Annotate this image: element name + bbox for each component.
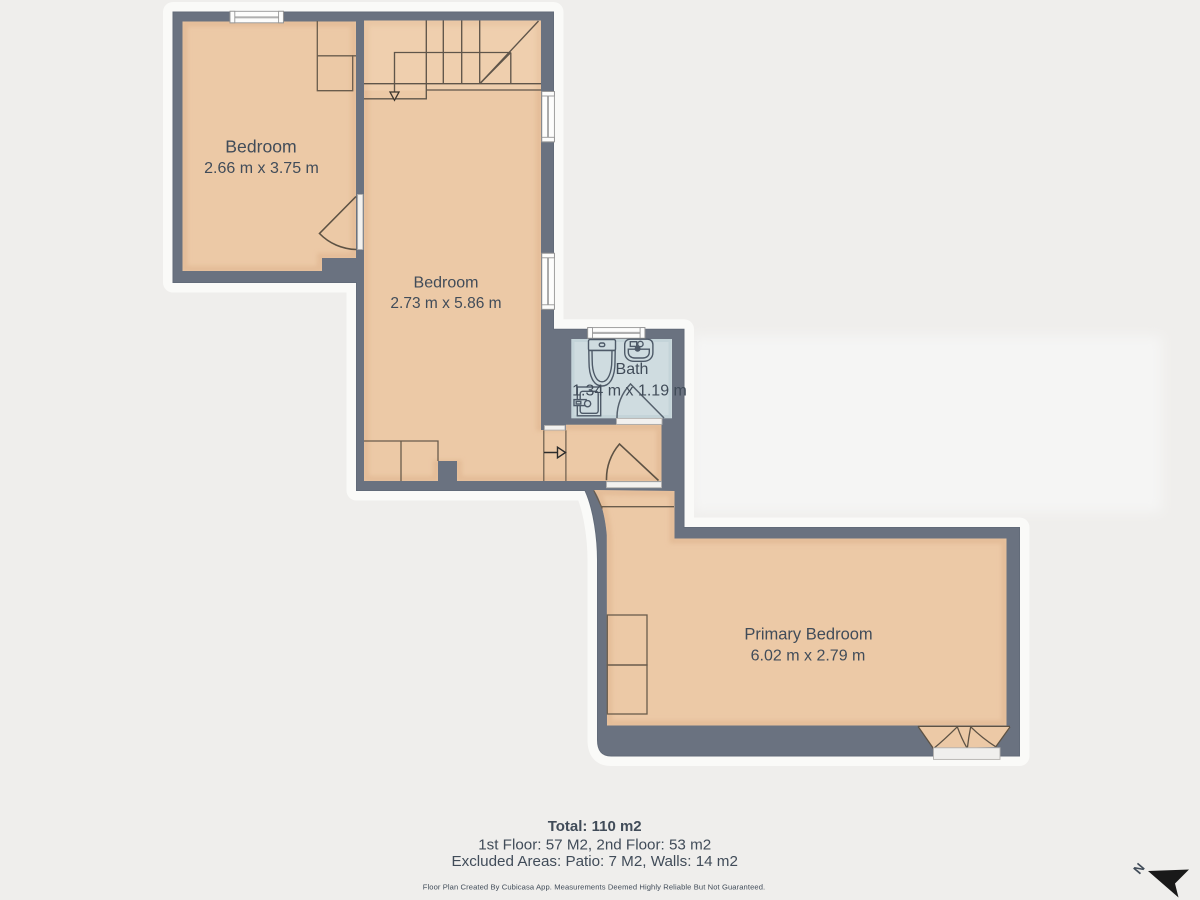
svg-text:Bedroom: Bedroom [414,275,479,292]
svg-text:1st Floor: 57 M2, 2nd Floor: 5: 1st Floor: 57 M2, 2nd Floor: 53 m2 [478,837,711,854]
svg-text:Bath: Bath [616,361,649,378]
svg-text:2.66 m x 3.75 m: 2.66 m x 3.75 m [204,160,319,177]
svg-text:2.73 m x 5.86 m: 2.73 m x 5.86 m [390,295,501,312]
svg-text:6.02 m x 2.79 m: 6.02 m x 2.79 m [751,648,866,665]
svg-text:Excluded Areas: Patio: 7 M2, W: Excluded Areas: Patio: 7 M2, Walls: 14 m… [451,853,737,870]
svg-text:Floor Plan Created By Cubicasa: Floor Plan Created By Cubicasa App. Meas… [423,883,766,892]
svg-text:Primary Bedroom: Primary Bedroom [744,626,872,644]
svg-text:1.34 m x 1.19 m: 1.34 m x 1.19 m [572,383,687,400]
svg-text:Bedroom: Bedroom [225,137,296,157]
svg-text:Total: 110 m2: Total: 110 m2 [548,818,642,835]
